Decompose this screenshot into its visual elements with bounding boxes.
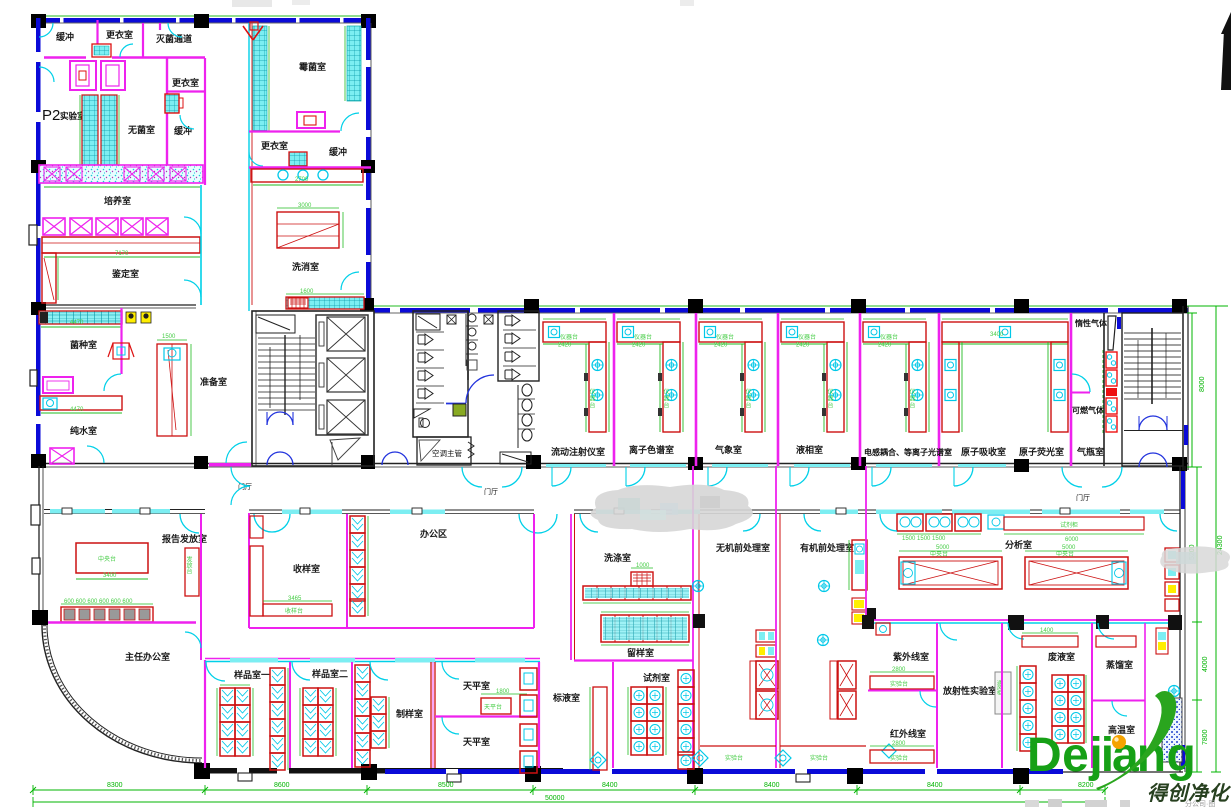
svg-text:2800: 2800 <box>892 741 906 747</box>
svg-text:无机前处理室: 无机前处理室 <box>715 542 770 553</box>
svg-text:惰性气体: 惰性气体 <box>1075 318 1108 328</box>
svg-text:7170: 7170 <box>115 251 129 257</box>
svg-text:收样室: 收样室 <box>293 563 320 574</box>
svg-text:制样室: 制样室 <box>396 708 423 719</box>
svg-text:1600: 1600 <box>300 289 314 295</box>
svg-text:8400: 8400 <box>764 782 780 789</box>
svg-text:标液室: 标液室 <box>552 692 580 703</box>
svg-text:实验台: 实验台 <box>725 754 743 762</box>
svg-text:4470: 4470 <box>70 320 84 326</box>
svg-text:更衣室: 更衣室 <box>261 140 288 151</box>
svg-text:8400: 8400 <box>927 782 943 789</box>
svg-text:1500: 1500 <box>162 334 176 340</box>
svg-text:实验台: 实验台 <box>890 680 908 688</box>
svg-text:中央台: 中央台 <box>1056 550 1074 558</box>
svg-text:液相室: 液相室 <box>796 444 823 455</box>
svg-text:电感耦合、等离子光谱室: 电感耦合、等离子光谱室 <box>864 447 952 457</box>
svg-text:缓冲: 缓冲 <box>174 125 192 136</box>
svg-text:5000: 5000 <box>1062 545 1076 551</box>
svg-text:洗涤室: 洗涤室 <box>604 552 631 563</box>
svg-text:样品室一: 样品室一 <box>234 669 270 680</box>
svg-text:门厅: 门厅 <box>484 487 498 496</box>
svg-text:鉴定室: 鉴定室 <box>111 268 139 279</box>
svg-text:2700: 2700 <box>295 177 309 183</box>
svg-text:蒸馏室: 蒸馏室 <box>1106 659 1133 670</box>
svg-text:培养室: 培养室 <box>104 195 131 206</box>
svg-text:8000: 8000 <box>1199 376 1206 392</box>
svg-text:实验台: 实验台 <box>890 754 908 762</box>
svg-text:1000: 1000 <box>636 563 650 569</box>
svg-text:分公司·图: 分公司·图 <box>1185 799 1215 807</box>
svg-text:分析室: 分析室 <box>1005 539 1032 550</box>
svg-text:8200: 8200 <box>1078 782 1094 789</box>
svg-text:可燃气体: 可燃气体 <box>1072 405 1105 415</box>
svg-text:红外线室: 红外线室 <box>890 728 926 739</box>
svg-text:有机前处理室: 有机前处理室 <box>800 542 854 553</box>
svg-text:气瓶室: 气瓶室 <box>1076 446 1104 457</box>
svg-text:主任办公室: 主任办公室 <box>125 651 170 662</box>
svg-text:1500 1500 1500: 1500 1500 1500 <box>902 536 946 542</box>
svg-text:纯水室: 纯水室 <box>70 425 97 436</box>
svg-text:准备室: 准备室 <box>200 376 227 387</box>
svg-text:废液室: 废液室 <box>1048 651 1075 662</box>
svg-text:缓冲: 缓冲 <box>56 31 74 42</box>
svg-text:4000: 4000 <box>1202 656 1209 672</box>
svg-text:更衣室: 更衣室 <box>172 77 199 88</box>
svg-text:缓冲: 缓冲 <box>329 146 347 157</box>
svg-text:试剂柜: 试剂柜 <box>1060 521 1078 529</box>
svg-text:离子色谱室: 离子色谱室 <box>629 444 674 455</box>
svg-text:3000: 3000 <box>298 203 312 209</box>
svg-text:办公区: 办公区 <box>420 528 447 539</box>
svg-text:8300: 8300 <box>107 782 123 789</box>
svg-text:6000: 6000 <box>1065 537 1079 543</box>
svg-text:门厅: 门厅 <box>1076 493 1090 502</box>
svg-text:2800: 2800 <box>892 667 906 673</box>
svg-text:4470: 4470 <box>70 407 84 413</box>
svg-text:5000: 5000 <box>936 545 950 551</box>
svg-text:紫外线室: 紫外线室 <box>893 651 929 662</box>
svg-text:霉菌室: 霉菌室 <box>299 61 326 72</box>
svg-text:天平室: 天平室 <box>463 680 490 691</box>
svg-text:原子荧光室: 原子荧光室 <box>1019 446 1064 457</box>
svg-text:留样室: 留样室 <box>627 647 654 658</box>
svg-text:3465: 3465 <box>288 596 302 602</box>
svg-text:3400: 3400 <box>103 573 117 579</box>
svg-text:8600: 8600 <box>274 782 290 789</box>
svg-text:1800: 1800 <box>496 689 510 695</box>
svg-text:实验台: 实验台 <box>810 754 828 762</box>
svg-text:7800: 7800 <box>1202 729 1209 745</box>
svg-text:收样台: 收样台 <box>285 607 303 615</box>
svg-text:原子吸收室: 原子吸收室 <box>961 446 1006 457</box>
svg-text:天平室: 天平室 <box>463 736 490 747</box>
svg-text:菌种室: 菌种室 <box>70 339 97 350</box>
svg-text:8400: 8400 <box>602 782 618 789</box>
svg-text:更衣室: 更衣室 <box>106 29 133 40</box>
svg-text:气象室: 气象室 <box>714 444 742 455</box>
svg-text:流动注射仪室: 流动注射仪室 <box>551 446 605 457</box>
svg-text:发放台: 发放台 <box>185 555 192 575</box>
svg-text:P2: P2 <box>42 107 60 124</box>
svg-text:中央台: 中央台 <box>98 555 116 563</box>
svg-text:洗消室: 洗消室 <box>292 261 319 272</box>
svg-text:放射性实验室: 放射性实验室 <box>942 685 997 696</box>
svg-text:1400: 1400 <box>1040 628 1054 634</box>
svg-text:3400: 3400 <box>990 332 1004 338</box>
svg-text:样品室二: 样品室二 <box>312 668 348 679</box>
svg-text:中央台: 中央台 <box>930 550 948 558</box>
svg-text:无菌室: 无菌室 <box>127 124 155 135</box>
svg-text:600 600 600 600 600 600: 600 600 600 600 600 600 <box>64 599 133 605</box>
svg-text:8500: 8500 <box>438 782 454 789</box>
svg-text:天平台: 天平台 <box>484 703 502 711</box>
svg-text:Dejiang: Dejiang <box>1027 729 1196 782</box>
svg-text:50000: 50000 <box>545 795 565 802</box>
svg-text:试剂室: 试剂室 <box>643 672 670 683</box>
svg-text:空调主管: 空调主管 <box>432 448 462 458</box>
